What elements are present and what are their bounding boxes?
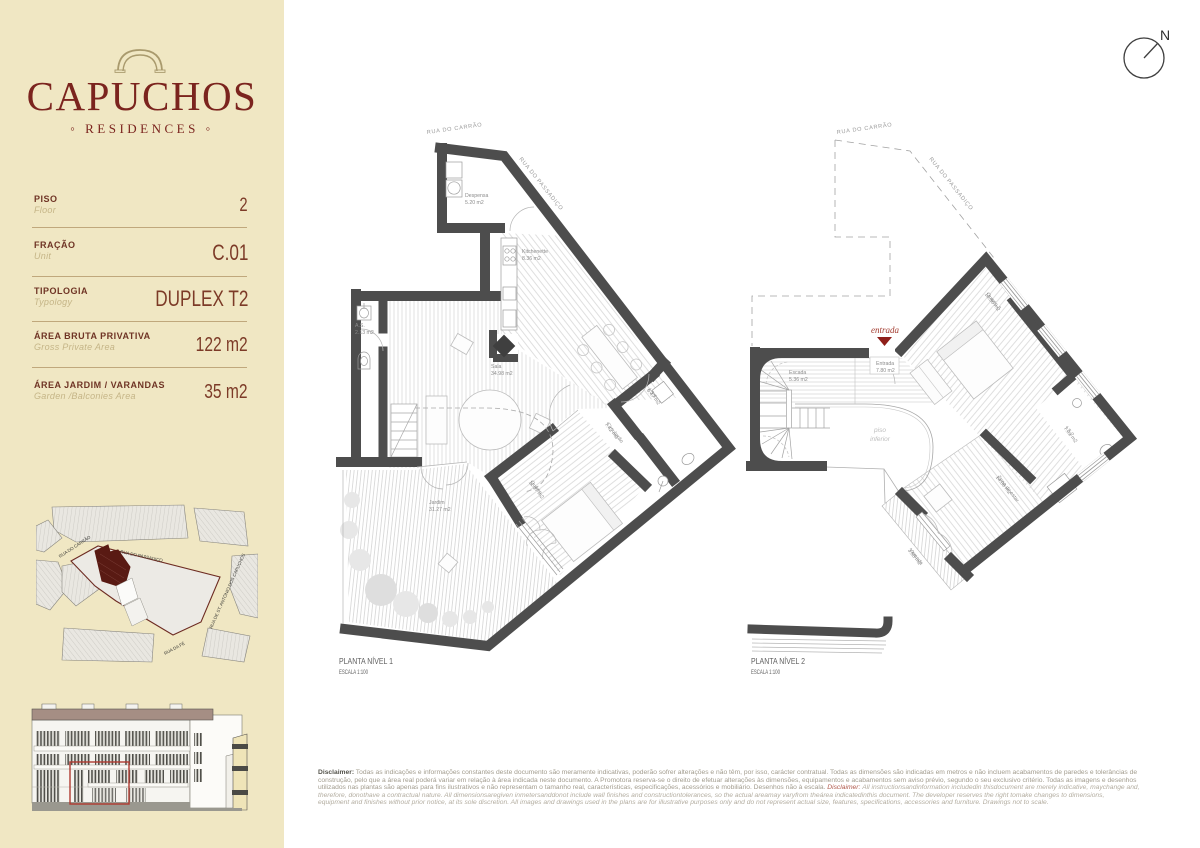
svg-text:Jardim: Jardim	[429, 500, 445, 506]
svg-text:34.98 m2: 34.98 m2	[491, 371, 513, 377]
svg-text:Sala: Sala	[491, 364, 501, 370]
svg-text:ESCALA 1:100: ESCALA 1:100	[339, 669, 368, 676]
svg-text:2.13 m2: 2.13 m2	[355, 330, 374, 336]
svg-text:Despensa: Despensa	[465, 193, 488, 199]
svg-text:8.36 m2: 8.36 m2	[522, 256, 541, 262]
svg-text:PLANTA NÍVEL 2: PLANTA NÍVEL 2	[751, 656, 805, 666]
svg-text:N: N	[1160, 27, 1170, 43]
svg-text:PLANTA NÍVEL 1: PLANTA NÍVEL 1	[339, 656, 393, 666]
svg-text:7.80 m2: 7.80 m2	[876, 368, 895, 374]
svg-text:5.20 m2: 5.20 m2	[465, 200, 484, 206]
svg-text:Kitchenette: Kitchenette	[522, 249, 548, 255]
svg-text:inferior: inferior	[870, 436, 891, 443]
svg-text:entrada: entrada	[871, 325, 899, 335]
svg-text:Entrada: Entrada	[876, 361, 894, 367]
svg-text:31.27 m2: 31.27 m2	[429, 507, 451, 513]
svg-text:RUA DO PASSADIÇO: RUA DO PASSADIÇO	[927, 156, 973, 211]
svg-text:piso: piso	[873, 427, 886, 434]
svg-text:Escada: Escada	[789, 370, 806, 376]
svg-text:RUA DO CARRÃO: RUA DO CARRÃO	[836, 121, 892, 136]
svg-text:5.36 m2: 5.36 m2	[789, 377, 808, 383]
svg-text:ESCALA 1:100: ESCALA 1:100	[751, 669, 780, 676]
svg-text:A.S.: A.S.	[355, 323, 365, 329]
svg-text:RUA DO CARRÃO: RUA DO CARRÃO	[426, 121, 482, 136]
